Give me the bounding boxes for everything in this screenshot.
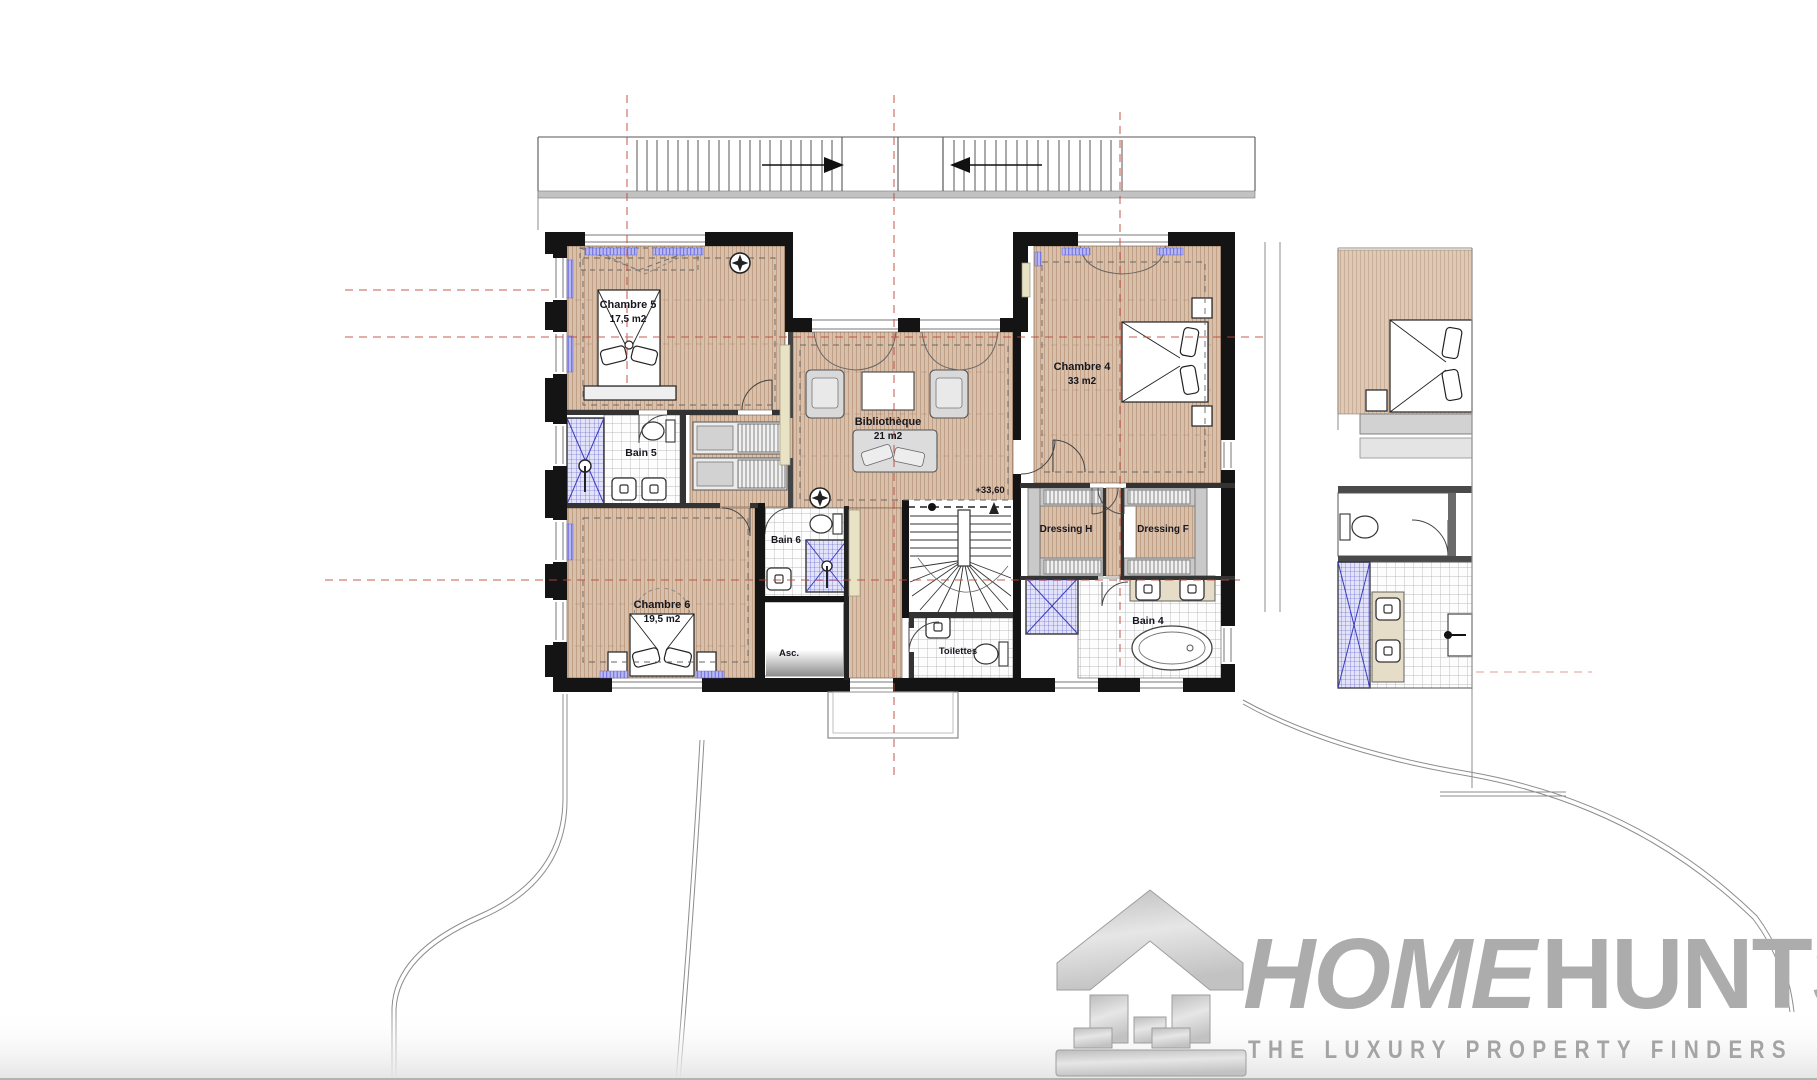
logo-hunts: HUNTS — [1541, 918, 1817, 1030]
porch — [828, 692, 958, 738]
label-bain4: Bain 4 — [1132, 615, 1164, 627]
wall-fragment-1 — [1338, 486, 1472, 493]
shower-bain4 — [1026, 578, 1078, 634]
label-chambre5: Chambre 5 — [600, 299, 657, 311]
label-chambre6: Chambre 6 — [634, 599, 691, 611]
label-chambre5-area: 17,5 m2 — [610, 314, 647, 325]
label-chambre4-area: 33 m2 — [1068, 376, 1097, 387]
roof-stairs — [538, 137, 1255, 198]
label-bain6: Bain 6 — [771, 535, 801, 546]
floor-plan-svg: Chambre 5 17,5 m2 Bain 5 Chambre 6 19,5 … — [0, 0, 1817, 1080]
label-toilettes: Toilettes — [939, 646, 977, 657]
bath-fragment — [1338, 562, 1472, 688]
label-level-marker: +33,60 — [975, 485, 1004, 496]
wc-fragment — [1338, 493, 1456, 556]
bathtub — [1132, 626, 1212, 670]
homehunts-logo: HOMEHUNTS THE LUXURY PROPERTY FINDERS — [1056, 890, 1817, 1076]
floor-passage — [1106, 488, 1121, 576]
shower-bain5 — [567, 418, 604, 504]
logo-home: HOME — [1243, 918, 1540, 1030]
label-chambre6-area: 19,5 m2 — [644, 614, 681, 625]
armchair-left-seat — [812, 378, 838, 408]
coffee-table — [862, 372, 914, 410]
label-dressing-h: Dressing H — [1040, 524, 1093, 535]
logo-tagline: THE LUXURY PROPERTY FINDERS — [1248, 1036, 1793, 1064]
label-dressing-f: Dressing F — [1137, 524, 1189, 535]
label-chambre4: Chambre 4 — [1054, 361, 1112, 373]
ceiling-light-symbol-hall — [810, 488, 830, 508]
floor-plan-page: Chambre 5 17,5 m2 Bain 5 Chambre 6 19,5 … — [0, 0, 1817, 1080]
label-bibliotheque: Bibliothèque — [855, 416, 922, 428]
wall-fragment-2 — [1338, 556, 1472, 562]
bench-fragment — [1360, 414, 1472, 434]
closet-fragment — [1360, 438, 1472, 458]
toilet-toilettes — [974, 642, 1008, 666]
toilet-bain6 — [810, 514, 842, 534]
adjacent-plan-fragment — [1338, 248, 1472, 688]
ceiling-light-symbol-chambre5 — [730, 253, 750, 273]
label-bibliotheque-area: 21 m2 — [874, 431, 903, 442]
armchair-right-seat — [936, 378, 962, 408]
label-bain5: Bain 5 — [625, 447, 657, 459]
valve-fragment — [1444, 614, 1472, 656]
shower-bain6 — [806, 540, 847, 592]
logo-wordmark: HOMEHUNTS — [1243, 918, 1817, 1030]
label-ascenseur: Asc. — [779, 648, 799, 659]
